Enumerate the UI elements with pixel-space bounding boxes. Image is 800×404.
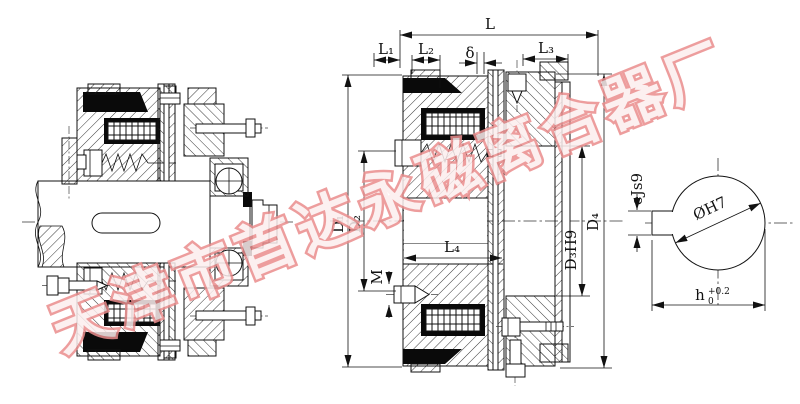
left-view-upper-assembly	[77, 84, 268, 196]
dim-label-L2: L₂	[418, 40, 434, 58]
dim-label-e: eJs9	[628, 173, 646, 205]
bolt-head	[502, 318, 520, 336]
coil-winding	[108, 122, 156, 140]
dim-label-L1: L₁	[378, 40, 394, 58]
dim-label-delta: δ	[465, 44, 474, 62]
dim-label-M: M	[368, 269, 386, 284]
dim-label-D4: D₄	[584, 213, 602, 231]
side-bolt	[196, 124, 246, 133]
coil-winding	[426, 309, 480, 331]
magnet-segment	[411, 70, 440, 79]
technical-drawing: L L₁ L₂ δ L₃ L₄ M D₁ D₂	[0, 0, 800, 404]
brake-lining	[88, 84, 120, 94]
drawing-canvas: L L₁ L₂ δ L₃ L₄ M D₁ D₂	[0, 0, 800, 404]
dim-label-L3: L₃	[538, 39, 554, 57]
dim-label-L4: L₄	[444, 238, 460, 256]
dim-label-L: L	[485, 15, 495, 33]
shaft-keyway	[92, 213, 160, 233]
dim-label-h-tol-upper: +0.2	[708, 287, 730, 297]
keyway-slot	[652, 212, 673, 234]
dim-label-D3H9: D₃H9	[562, 230, 580, 271]
dim-label-h: h	[695, 286, 705, 304]
bore-cross-section-view: ØH7 eJs9 h +0.2 0	[628, 158, 793, 311]
dim-label-h-tol-lower: 0	[708, 297, 714, 307]
